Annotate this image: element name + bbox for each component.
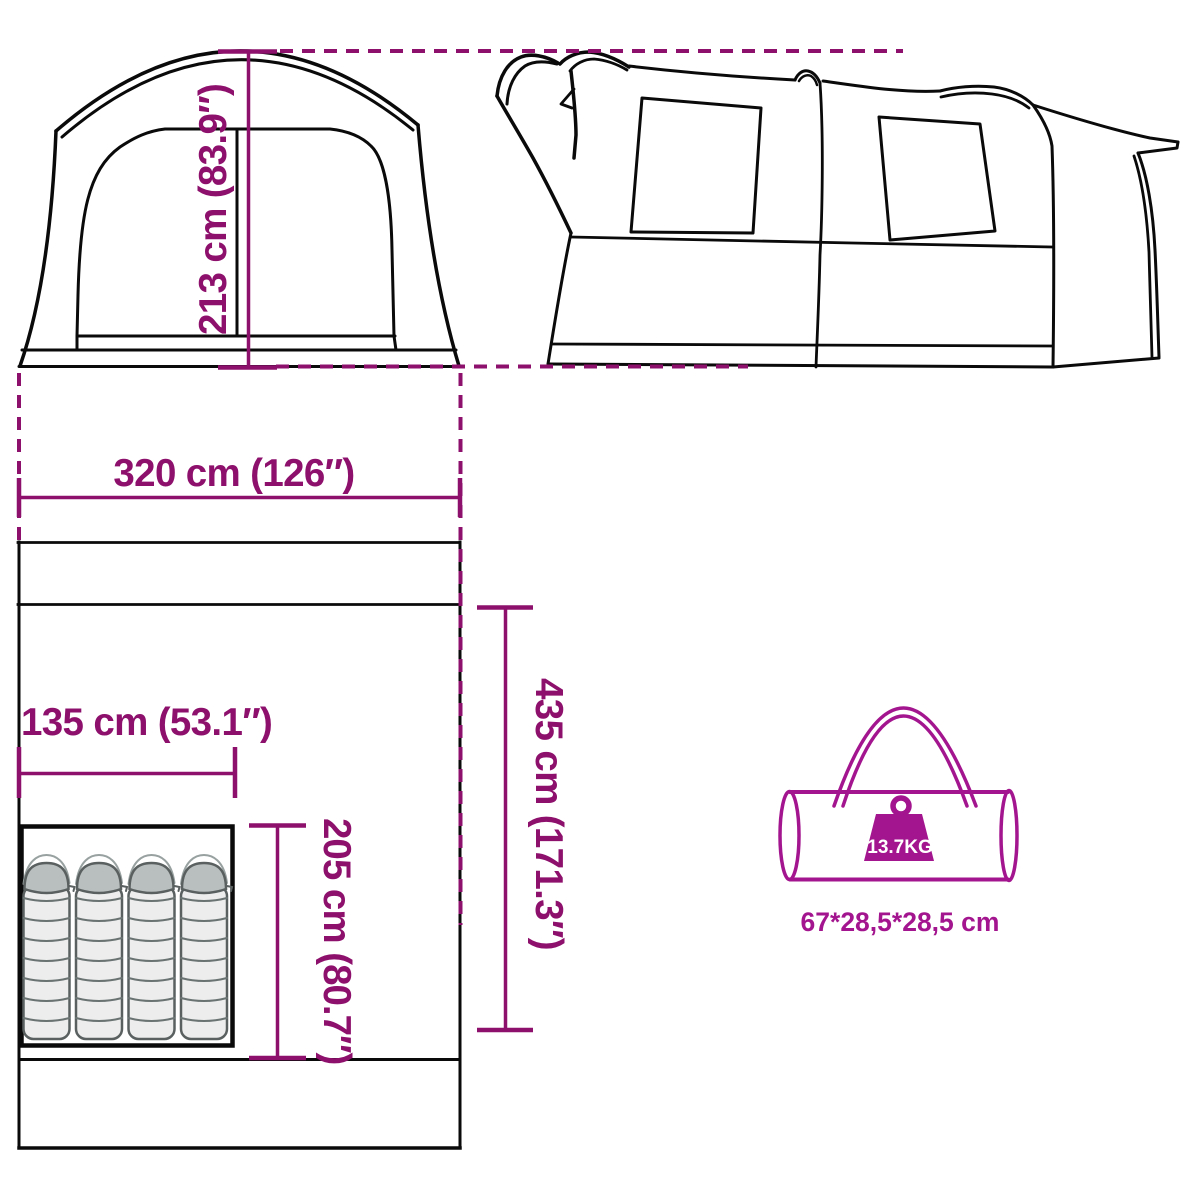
svg-text:13.7KG: 13.7KG bbox=[867, 837, 932, 858]
svg-text:67*28,5*28,5 cm: 67*28,5*28,5 cm bbox=[801, 907, 1000, 937]
svg-text:435 cm (171.3″): 435 cm (171.3″) bbox=[527, 678, 570, 950]
svg-text:213 cm (83.9″): 213 cm (83.9″) bbox=[192, 84, 235, 335]
svg-text:205 cm (80.7″): 205 cm (80.7″) bbox=[315, 818, 358, 1064]
svg-text:135 cm (53.1″): 135 cm (53.1″) bbox=[21, 701, 272, 744]
svg-text:320 cm (126″): 320 cm (126″) bbox=[113, 452, 354, 495]
